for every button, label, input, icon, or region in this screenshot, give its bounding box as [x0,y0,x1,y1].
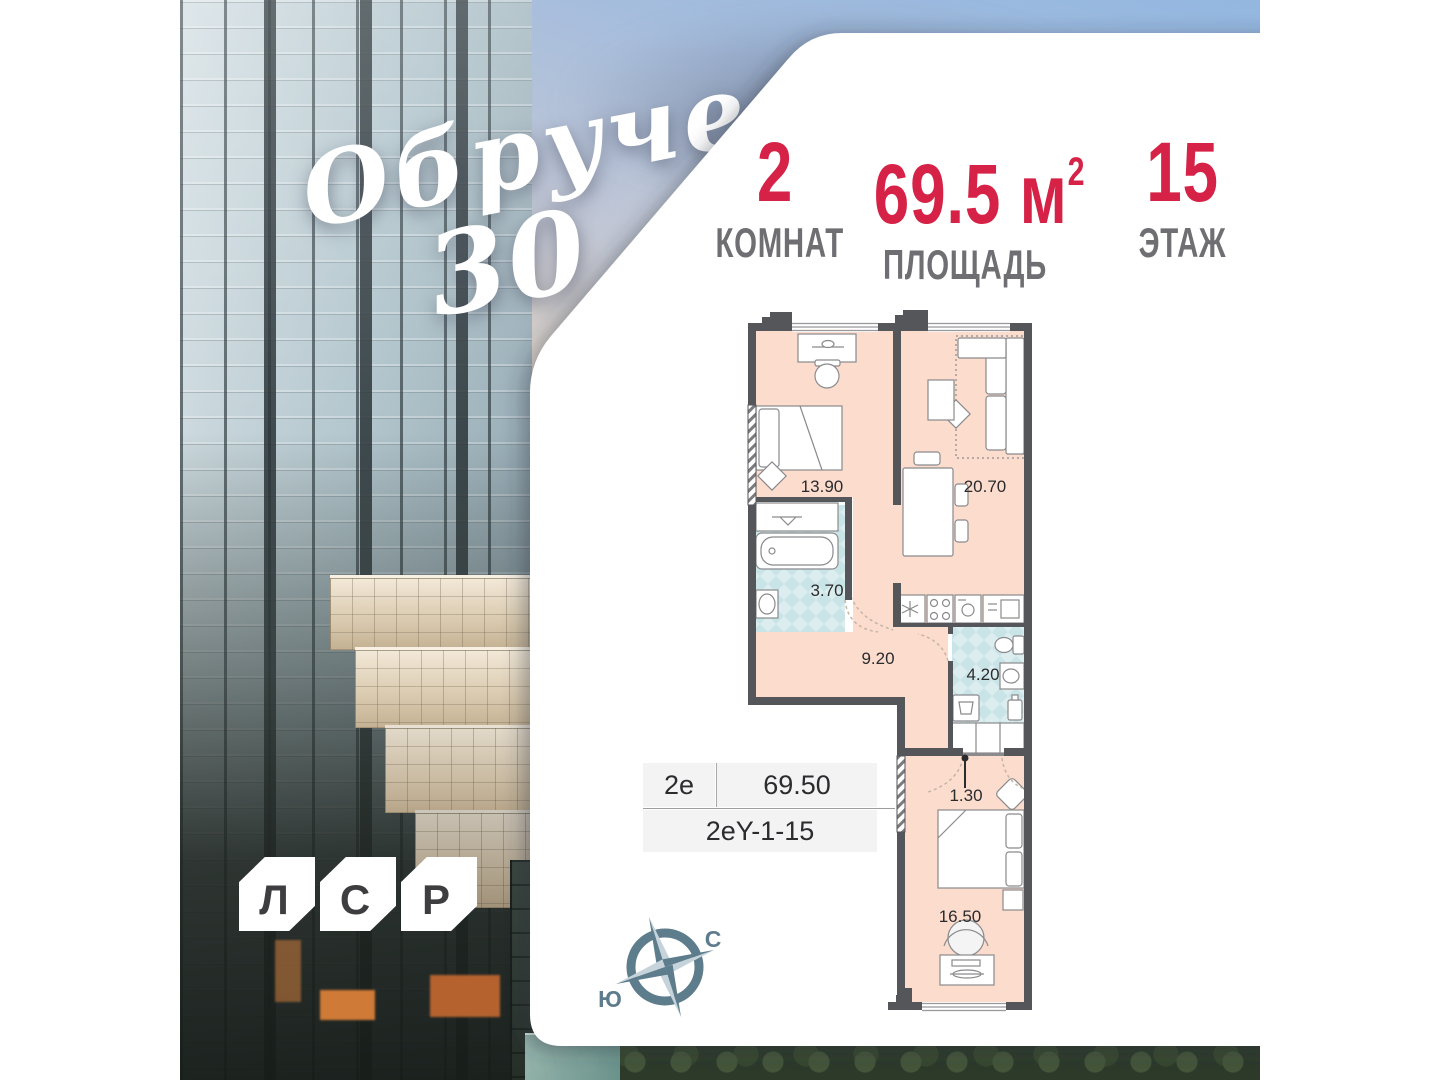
stat-rooms: 2 КОМНАТ [690,126,860,266]
apartment-type: 2е [643,763,715,807]
room-area-label: 9.20 [861,649,894,668]
stat-floor: 15 ЭТАЖ [1095,126,1270,266]
apartment-info-table: 2е 69.50 2еY-1-15 [643,763,895,852]
floor-plan: 13.90 20.70 3.70 9.20 4.20 1.30 16.50 [745,305,1050,1015]
compass-icon: С Ю [580,895,760,1040]
floor-label: ЭТАЖ [1121,220,1244,266]
room-area-label: 1.30 [949,786,982,805]
area-label: ПЛОЩАДЬ [881,242,1049,288]
room-area-label: 3.70 [810,581,843,600]
apartment-code: 2еY-1-15 [643,810,877,852]
room-area-label: 4.20 [966,665,999,684]
room-area-label: 16.50 [939,907,982,926]
compass-north-label: С [705,926,722,952]
area-value: 69.5 м2 [874,126,1056,240]
room-area-label: 13.90 [801,477,844,496]
floor-value: 15 [1116,126,1249,218]
apartment-card: Обручева 30 Л С Р 2 КОМНАТ 69.5 м2 ПЛОЩА… [0,0,1440,1080]
rooms-value: 2 [710,126,839,218]
stat-area: 69.5 м2 ПЛОЩАДЬ [845,126,1085,288]
room-area-label: 20.70 [964,477,1007,496]
table-divider [643,808,895,809]
apartment-area: 69.50 [716,763,877,807]
rooms-label: КОМНАТ [716,220,835,266]
compass-south-label: Ю [598,986,622,1012]
